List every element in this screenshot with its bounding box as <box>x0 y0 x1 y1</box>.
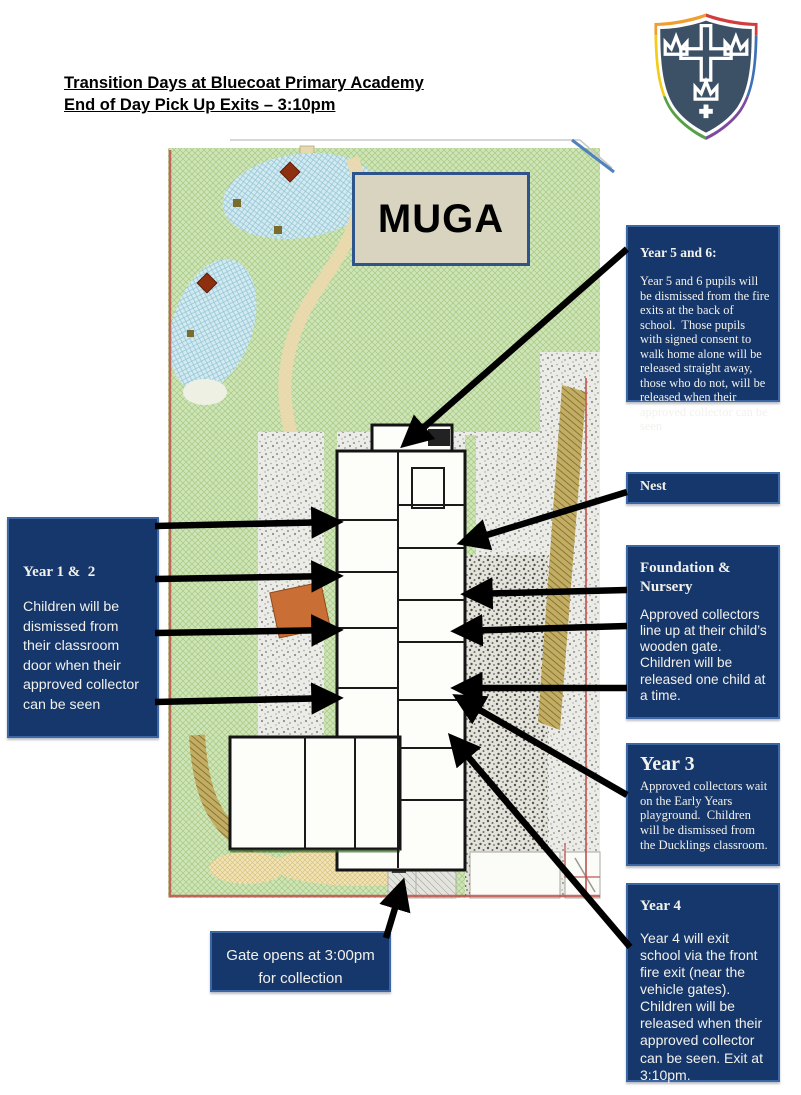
callout-year-1-2-body: Children will be dismissed from their cl… <box>23 598 147 716</box>
muga-label: MUGA <box>352 172 530 266</box>
callout-foundation-body: Approved collectors line up at their chi… <box>640 607 770 705</box>
callout-gate-opens: Gate opens at 3:00pm for collection <box>210 931 391 992</box>
document-page: Transition Days at Bluecoat Primary Acad… <box>0 0 801 1095</box>
callout-year-3-title: Year 3 <box>640 753 770 776</box>
callout-year-4: Year 4 Year 4 will exit school via the f… <box>626 883 780 1082</box>
muga-label-text: MUGA <box>378 197 504 242</box>
callout-nest-title: Nest <box>640 479 766 495</box>
callout-year-3-body: Approved collectors wait on the Early Ye… <box>640 779 770 853</box>
callout-foundation-nursery: Foundation & Nursery Approved collectors… <box>626 545 780 719</box>
callout-year-1-2-title: Year 1 & 2 <box>23 564 147 581</box>
callout-year-5-6-title: Year 5 and 6: <box>640 245 770 261</box>
callout-year-4-body: Year 4 will exit school via the front fi… <box>640 930 770 1084</box>
callout-year-4-title: Year 4 <box>640 898 770 915</box>
callout-year-1-2: Year 1 & 2 Children will be dismissed fr… <box>7 517 159 738</box>
callout-year-3: Year 3 Approved collectors wait on the E… <box>626 743 780 866</box>
callout-year-5-6-body: Year 5 and 6 pupils will be dismissed fr… <box>640 274 770 434</box>
callout-gate-opens-body: Gate opens at 3:00pm for collection <box>212 945 389 990</box>
callout-nest: Nest <box>626 472 780 504</box>
callout-year-5-6: Year 5 and 6: Year 5 and 6 pupils will b… <box>626 225 780 402</box>
callout-foundation-title: Foundation & Nursery <box>640 559 770 597</box>
